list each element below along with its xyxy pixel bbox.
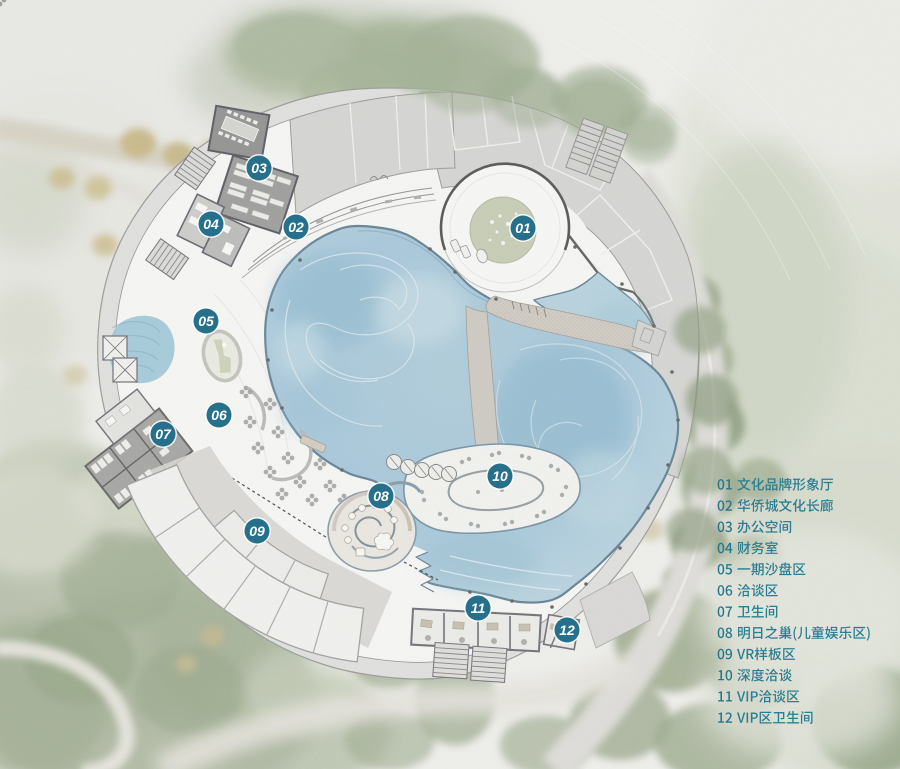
svg-text:03: 03 (251, 160, 267, 176)
svg-text:01: 01 (515, 220, 531, 236)
svg-text:06: 06 (211, 407, 227, 423)
svg-text:04: 04 (203, 216, 219, 232)
svg-text:09: 09 (249, 523, 265, 539)
svg-text:12: 12 (559, 622, 575, 638)
svg-text:08: 08 (373, 488, 389, 504)
svg-text:11: 11 (471, 600, 486, 616)
svg-text:05: 05 (198, 313, 214, 329)
svg-text:02: 02 (288, 219, 304, 235)
svg-text:10: 10 (492, 468, 508, 484)
svg-text:07: 07 (155, 426, 172, 442)
